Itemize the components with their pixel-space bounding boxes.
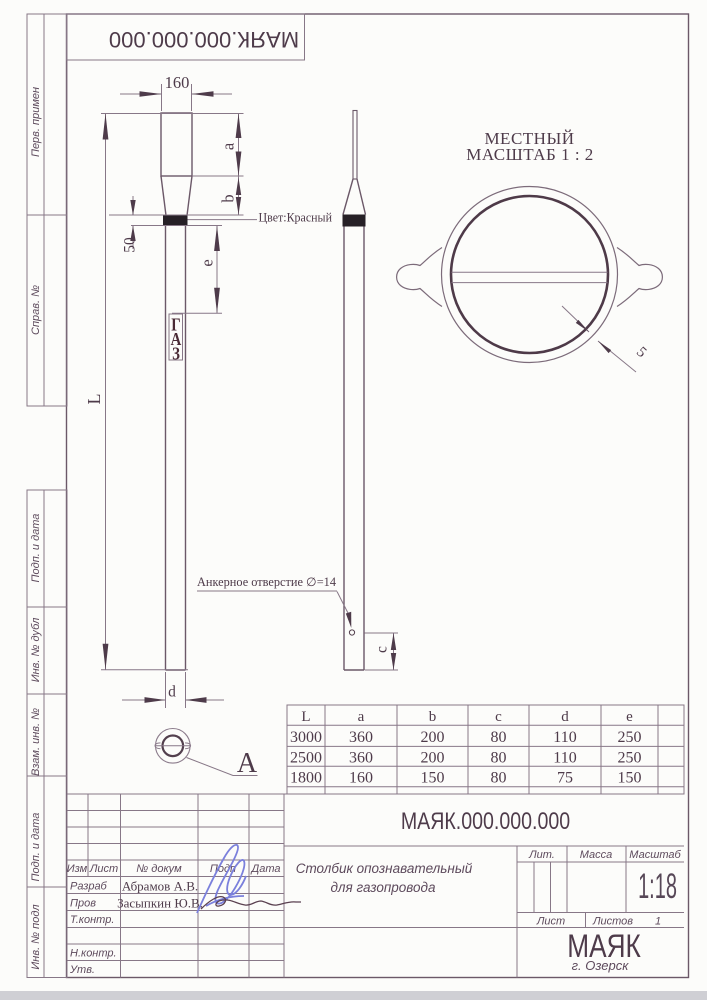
svg-text:L: L: [84, 394, 104, 405]
svg-text:150: 150: [618, 770, 642, 787]
svg-text:1: 1: [655, 916, 661, 928]
svg-text:для газопровода: для газопровода: [330, 880, 436, 895]
svg-text:Подп. и дата: Подп. и дата: [30, 514, 42, 583]
svg-text:Дата: Дата: [249, 863, 280, 875]
svg-text:b: b: [429, 709, 437, 725]
svg-text:г. Озерск: г. Озерск: [572, 958, 630, 973]
svg-text:Лит.: Лит.: [528, 849, 555, 861]
svg-text:150: 150: [421, 770, 445, 787]
svg-text:Подп. и дата: Подп. и дата: [30, 813, 42, 882]
svg-text:Лист: Лист: [536, 916, 565, 928]
svg-text:Анкерное отверстие ∅=14: Анкерное отверстие ∅=14: [197, 575, 336, 589]
svg-text:Абрамов А.В.: Абрамов А.В.: [122, 879, 198, 894]
svg-text:200: 200: [421, 729, 445, 746]
svg-text:50: 50: [122, 237, 139, 253]
svg-text:b: b: [219, 194, 238, 202]
svg-text:1:18: 1:18: [638, 867, 677, 906]
svg-text:80: 80: [491, 750, 507, 767]
svg-text:d: d: [168, 684, 176, 701]
svg-text:Н.контр.: Н.контр.: [70, 948, 117, 960]
svg-text:e: e: [626, 709, 633, 725]
svg-text:МАЯК.000.000.000: МАЯК.000.000.000: [109, 27, 299, 52]
svg-text:L: L: [301, 709, 310, 725]
svg-text:Столбик опознавательный: Столбик опознавательный: [296, 861, 473, 876]
svg-text:Засыпкин Ю.В.: Засыпкин Ю.В.: [117, 896, 203, 911]
svg-text:Справ. №: Справ. №: [30, 285, 42, 335]
svg-text:110: 110: [553, 750, 576, 767]
svg-text:Листов: Листов: [592, 916, 633, 928]
svg-text:Масса: Масса: [580, 849, 613, 861]
svg-text:№ докум: № докум: [136, 863, 182, 875]
svg-text:a: a: [358, 709, 365, 725]
svg-text:e: e: [198, 259, 217, 266]
svg-text:200: 200: [421, 750, 445, 767]
svg-text:3000: 3000: [290, 729, 322, 746]
svg-text:Масштаб: Масштаб: [629, 849, 681, 861]
svg-text:Перв. примен: Перв. примен: [30, 87, 42, 157]
svg-text:80: 80: [491, 770, 507, 787]
svg-text:Разраб: Разраб: [70, 881, 108, 893]
svg-text:c: c: [374, 646, 391, 653]
svg-text:Инв. № подл: Инв. № подл: [30, 904, 42, 969]
svg-text:250: 250: [618, 729, 642, 746]
svg-text:Пров: Пров: [70, 898, 96, 910]
svg-text:Взам. инв. №: Взам. инв. №: [30, 708, 42, 776]
svg-text:80: 80: [491, 729, 507, 746]
svg-text:Лист: Лист: [89, 863, 118, 875]
svg-text:Цвет:Красный: Цвет:Красный: [259, 211, 333, 225]
svg-text:Изм: Изм: [67, 863, 88, 875]
svg-text:Утв.: Утв.: [69, 964, 95, 976]
svg-text:2500: 2500: [290, 750, 322, 767]
svg-text:МАЯК.000.000.000: МАЯК.000.000.000: [401, 807, 570, 835]
svg-text:110: 110: [553, 729, 576, 746]
svg-text:1800: 1800: [290, 770, 322, 787]
svg-text:75: 75: [557, 770, 573, 787]
svg-text:c: c: [495, 709, 502, 725]
svg-text:360: 360: [349, 750, 373, 767]
svg-text:Инв. № дубл: Инв. № дубл: [30, 618, 42, 683]
svg-text:Т.контр.: Т.контр.: [70, 914, 114, 926]
svg-text:250: 250: [618, 750, 642, 767]
svg-text:МАСШТАБ 1 : 2: МАСШТАБ 1 : 2: [466, 145, 594, 164]
svg-text:d: d: [561, 709, 569, 725]
svg-text:З: З: [172, 343, 180, 364]
svg-text:a: a: [219, 142, 238, 150]
svg-text:А: А: [237, 748, 258, 779]
svg-text:160: 160: [165, 73, 190, 92]
svg-text:160: 160: [349, 770, 373, 787]
svg-text:360: 360: [349, 729, 373, 746]
